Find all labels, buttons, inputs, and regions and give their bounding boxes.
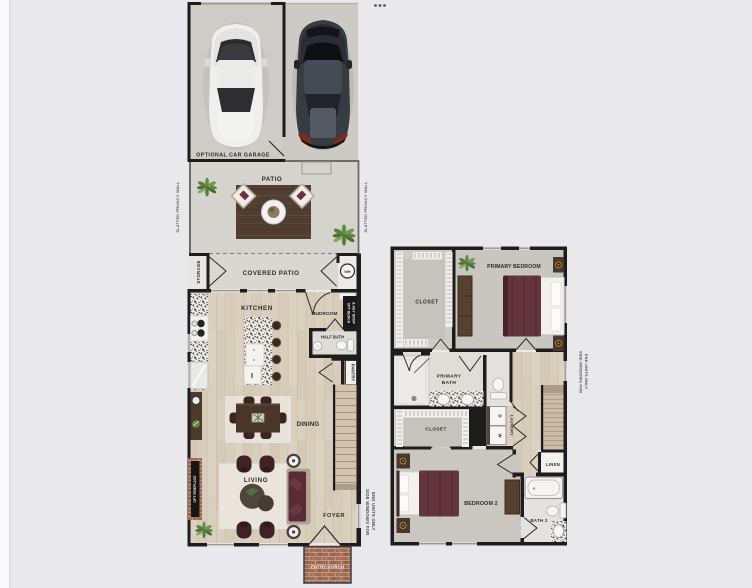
svg-text:OPT FIREPLACE: OPT FIREPLACE <box>193 475 197 503</box>
svg-text:COVERED PATIO: COVERED PATIO <box>243 270 300 277</box>
svg-text:DINING: DINING <box>297 421 320 428</box>
svg-text:END UNITS ONLY: END UNITS ONLY <box>584 354 589 390</box>
svg-text:PRIMARY BEDROOM: PRIMARY BEDROOM <box>487 264 541 270</box>
svg-text:LIVING: LIVING <box>244 477 268 484</box>
svg-text:PANTRY: PANTRY <box>351 364 356 382</box>
svg-text:WH: WH <box>344 270 351 274</box>
svg-text:& KEY DROP: & KEY DROP <box>352 302 356 324</box>
svg-text:OPTIONAL CAR GARAGE: OPTIONAL CAR GARAGE <box>196 153 270 159</box>
svg-text:D: D <box>498 414 503 417</box>
svg-text:KITCHEN: KITCHEN <box>241 305 273 312</box>
svg-text:SIDE WINDOWS FOR: SIDE WINDOWS FOR <box>365 489 370 536</box>
svg-text:LINEN: LINEN <box>546 462 560 467</box>
svg-text:SLATTED PRIVACY WALL: SLATTED PRIVACY WALL <box>364 181 368 233</box>
svg-text:BATH: BATH <box>442 380 457 386</box>
svg-text:W: W <box>498 434 503 438</box>
svg-text:MUDROOM: MUDROOM <box>312 311 338 316</box>
svg-text:ENTRY PORCH: ENTRY PORCH <box>311 565 345 570</box>
svg-text:OPT BENCH: OPT BENCH <box>347 303 351 324</box>
svg-text:PATIO: PATIO <box>262 176 283 183</box>
svg-text:LAUNDRY: LAUNDRY <box>510 415 515 436</box>
svg-text:BEDROOM 2: BEDROOM 2 <box>464 501 498 507</box>
svg-text:PRIMARY: PRIMARY <box>437 374 462 380</box>
svg-text:SIDE WINDOWS FOR: SIDE WINDOWS FOR <box>579 351 584 393</box>
svg-text:END UNITS ONLY: END UNITS ONLY <box>371 492 376 531</box>
svg-text:BATH 2: BATH 2 <box>530 518 548 523</box>
svg-text:STORAGE: STORAGE <box>196 260 201 283</box>
svg-text:HALF BATH: HALF BATH <box>321 335 344 340</box>
svg-text:CLOSET: CLOSET <box>415 300 438 306</box>
svg-text:SLATTED PRIVACY WALL: SLATTED PRIVACY WALL <box>176 181 180 233</box>
svg-text:FOYER: FOYER <box>323 513 345 519</box>
svg-text:CLOSET: CLOSET <box>425 427 446 432</box>
